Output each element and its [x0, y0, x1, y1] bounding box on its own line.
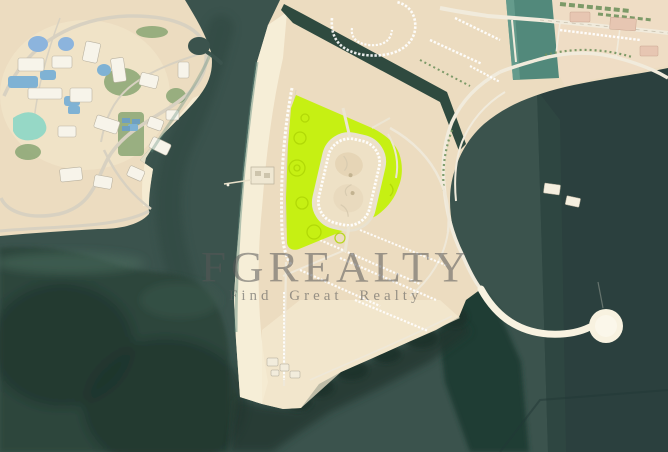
- satellite-map-art: [0, 0, 668, 452]
- satellite-map: FGREALTY Find Great Realty: [0, 0, 668, 452]
